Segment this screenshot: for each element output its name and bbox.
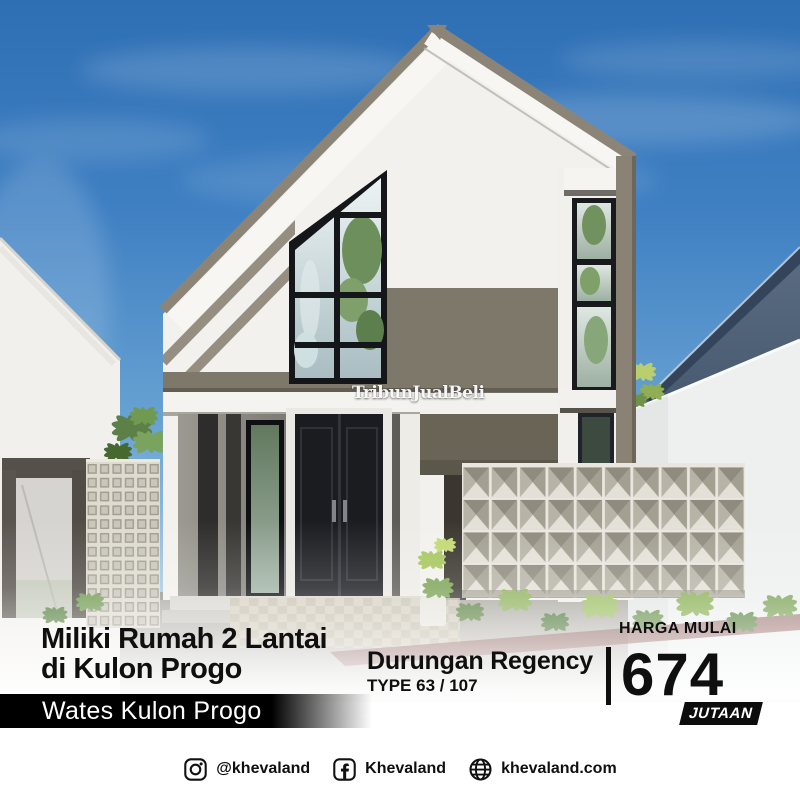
social-website: khevaland.com	[468, 757, 617, 782]
project-name: Durungan Regency	[367, 648, 593, 674]
location-banner: Wates Kulon Progo	[0, 694, 372, 728]
price-label: HARGA MULAI	[619, 620, 737, 638]
price-value: 674	[621, 647, 724, 703]
social-instagram: @khevaland	[183, 757, 310, 782]
project-type: TYPE 63 / 107	[367, 676, 593, 696]
price-unit: JUTAAN	[687, 705, 755, 722]
facebook-handle: Khevaland	[365, 760, 446, 778]
property-flyer: TribunJualBeli Miliki Rumah 2 Lantai di …	[0, 0, 800, 800]
location-banner-text: Wates Kulon Progo	[42, 697, 262, 726]
instagram-icon	[183, 757, 208, 782]
corner-band	[616, 156, 636, 475]
social-row: @khevaland Khevaland khevaland.com	[0, 751, 800, 787]
website-url: khevaland.com	[501, 760, 617, 778]
instagram-handle: @khevaland	[216, 760, 310, 778]
facebook-icon	[332, 757, 357, 782]
globe-icon	[468, 757, 493, 782]
headline-line1: Miliki Rumah 2 Lantai	[41, 624, 327, 654]
price-unit-badge: JUTAAN	[679, 702, 763, 725]
social-facebook: Khevaland	[332, 757, 446, 782]
headline-line2: di Kulon Progo	[41, 654, 327, 684]
project-info: Durungan Regency TYPE 63 / 107	[367, 648, 593, 696]
price-divider	[606, 647, 611, 705]
headline: Miliki Rumah 2 Lantai di Kulon Progo	[41, 624, 327, 684]
watermark: TribunJualBeli	[352, 383, 482, 403]
